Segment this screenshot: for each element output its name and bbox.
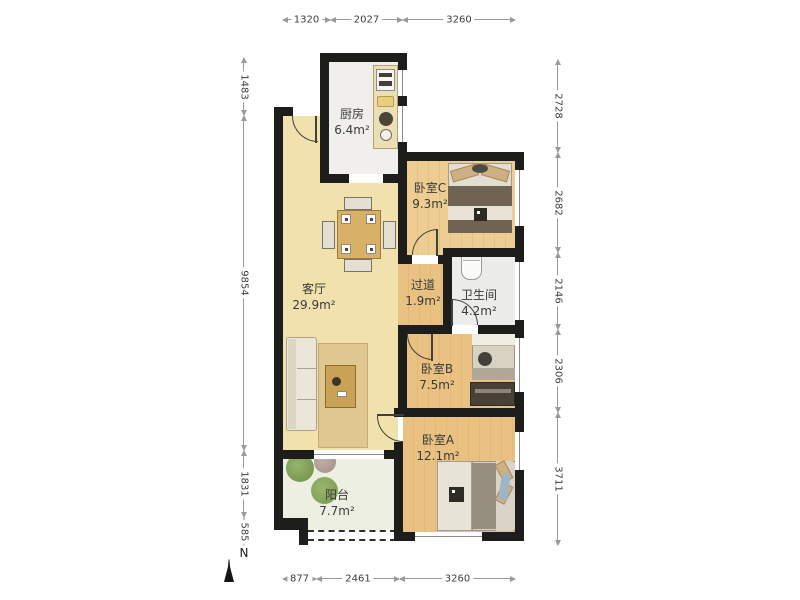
- wall: [398, 255, 412, 264]
- door-leaf: [451, 299, 453, 326]
- window: [515, 262, 524, 320]
- dimension-left-2: 9854: [237, 116, 249, 450]
- dimension-value: 2027: [351, 14, 382, 25]
- dimension-value: 2728: [552, 90, 563, 121]
- food-dot: [345, 248, 348, 251]
- north-compass: N: [228, 546, 260, 579]
- bed-foot-band: [472, 368, 515, 380]
- door-leaf: [431, 334, 433, 361]
- room-label-bedroomC: 卧室C 9.3m²: [412, 180, 448, 212]
- dimension-value: 2306: [552, 355, 563, 386]
- wall: [398, 152, 524, 161]
- dimension-right-5: 3711: [551, 413, 563, 545]
- room-name: 阳台: [325, 488, 349, 502]
- dining-chair: [383, 221, 396, 249]
- tv-cabinet: [470, 382, 515, 406]
- wall: [274, 450, 314, 459]
- wall: [320, 174, 349, 183]
- room-name: 卧室B: [421, 362, 453, 376]
- wall: [398, 408, 524, 417]
- dimension-top-3: 3260: [403, 13, 515, 25]
- food-dot: [370, 248, 373, 251]
- wall: [478, 325, 524, 334]
- dining-chair: [322, 221, 335, 249]
- coffee-table: [325, 365, 356, 408]
- north-label: N: [228, 546, 260, 560]
- dimension-value: 9854: [238, 267, 249, 298]
- balcony-open-edge: [308, 530, 396, 541]
- room-label-bathroom: 卫生间 4.2m²: [461, 287, 497, 319]
- dimension-value: 3260: [442, 573, 473, 584]
- wall: [398, 152, 407, 264]
- food-dot: [345, 218, 348, 221]
- dining-chair: [344, 259, 372, 272]
- window: [398, 106, 407, 142]
- room-label-living: 客厅 29.9m²: [292, 281, 335, 313]
- wall: [443, 248, 524, 257]
- sofa-seam: [297, 399, 316, 400]
- food-dot: [370, 218, 373, 221]
- window: [398, 70, 407, 96]
- door-leaf: [436, 229, 438, 256]
- room-label-bedroomA: 卧室A 12.1m²: [416, 432, 459, 464]
- room-label-balcony: 阳台 7.7m²: [319, 487, 355, 519]
- dimension-top-1: 1320: [283, 13, 330, 25]
- room-label-kitchen: 厨房 6.4m²: [334, 106, 370, 138]
- dining-chair: [344, 197, 372, 210]
- room-area: 1.9m²: [405, 294, 441, 308]
- dimension-left-3: 1831: [237, 451, 249, 517]
- dimension-value: 2146: [552, 275, 563, 306]
- dimension-value: 585: [238, 519, 249, 544]
- room-area: 7.5m²: [419, 378, 455, 392]
- round-cushion: [478, 352, 492, 366]
- room-name: 厨房: [340, 107, 364, 121]
- room-area: 6.4m²: [334, 123, 370, 137]
- sofa-seam: [297, 368, 316, 369]
- cutting-board: [377, 96, 394, 107]
- room-area: 4.2m²: [461, 304, 497, 318]
- room-name: 卧室A: [422, 433, 454, 447]
- sink: [380, 129, 392, 141]
- tray: [337, 391, 347, 397]
- ceiling-fan-icon: [472, 164, 488, 173]
- dimension-bottom-1: 877: [283, 572, 316, 584]
- wall: [320, 53, 407, 62]
- window: [515, 432, 524, 470]
- room-area: 12.1m²: [416, 449, 459, 463]
- dimension-right-4: 2306: [551, 330, 563, 412]
- room-name: 过道: [411, 278, 435, 292]
- wall: [384, 450, 403, 459]
- dimension-bottom-2: 2461: [317, 572, 399, 584]
- room-label-hallway: 过道 1.9m²: [405, 277, 441, 309]
- room-area: 29.9m²: [292, 298, 335, 312]
- room-area: 9.3m²: [412, 197, 448, 211]
- dimension-bottom-3: 3260: [400, 572, 515, 584]
- stove-burner: [379, 73, 392, 77]
- dimension-value: 2682: [552, 187, 563, 218]
- wall: [299, 518, 308, 545]
- dimension-left-1: 1483: [237, 58, 249, 115]
- room-label-bedroomB: 卧室B 7.5m²: [419, 361, 455, 393]
- sofa-back: [288, 339, 296, 429]
- stove-burner: [379, 81, 392, 86]
- dimension-value: 3711: [552, 463, 563, 494]
- room-name: 客厅: [302, 282, 326, 296]
- dimension-value: 1831: [238, 468, 249, 499]
- bed-pillow-band: [472, 334, 515, 346]
- teapot: [332, 377, 341, 386]
- bed-runner-box: [474, 208, 487, 221]
- room-name: 卧室C: [414, 181, 446, 195]
- dimension-value: 2461: [342, 573, 373, 584]
- dimension-right-2: 2682: [551, 153, 563, 252]
- window: [515, 338, 524, 392]
- floor-plan: 厨房 6.4m² 卧室C 9.3m² 客厅 29.9m² 过道 1.9m² 卫生…: [0, 0, 800, 600]
- compass-icon: [228, 559, 230, 580]
- dimension-top-2: 2027: [331, 13, 402, 25]
- cabinet-detail: [475, 389, 511, 393]
- window: [515, 170, 524, 226]
- bed-duvet: [472, 463, 498, 529]
- dimension-left-4: 585: [237, 518, 249, 545]
- dimension-right-1: 2728: [551, 60, 563, 152]
- box-dot: [452, 490, 455, 493]
- window: [415, 532, 482, 541]
- balcony-slider-window: [314, 450, 384, 459]
- sink-bowl: [379, 112, 393, 126]
- wall: [320, 53, 329, 183]
- door-leaf: [377, 414, 404, 416]
- dimension-value: 1320: [291, 14, 322, 25]
- dimension-right-3: 2146: [551, 253, 563, 329]
- dimension-value: 3260: [443, 14, 474, 25]
- room-area: 7.7m²: [319, 504, 355, 518]
- box-dot: [477, 211, 480, 214]
- dimension-value: 877: [287, 573, 312, 584]
- door-leaf: [315, 116, 317, 143]
- dimension-value: 1483: [238, 71, 249, 102]
- room-name: 卫生间: [461, 288, 497, 302]
- wall: [398, 325, 407, 417]
- wall: [274, 107, 293, 116]
